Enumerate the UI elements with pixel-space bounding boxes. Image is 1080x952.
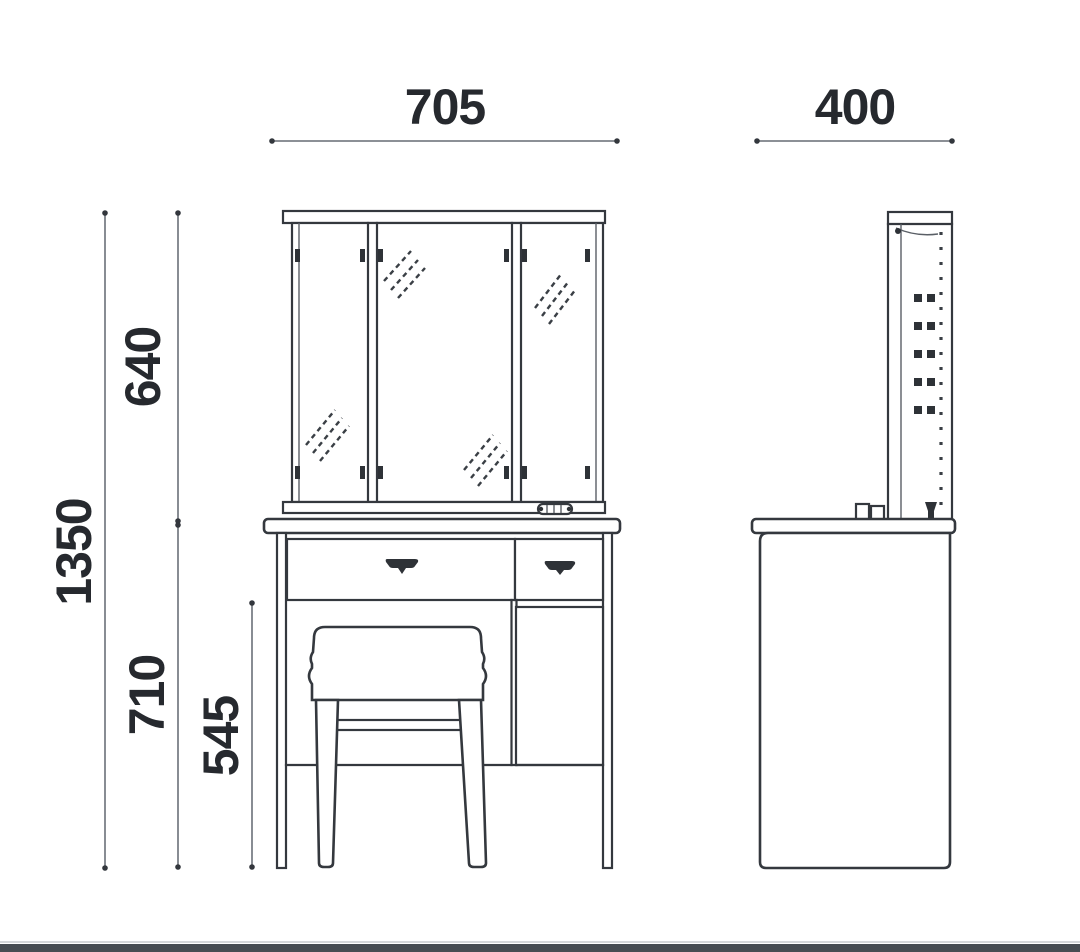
stool	[309, 627, 486, 867]
dim-line-640	[175, 210, 181, 524]
dimension-label-overall-height: 1350	[47, 442, 101, 662]
dimension-label-knee-clearance: 545	[194, 626, 248, 846]
desk-left-leg	[277, 533, 286, 868]
tabletop-knob	[538, 504, 572, 514]
front-view	[264, 211, 620, 868]
stool-leg-right	[459, 700, 486, 867]
mirror-frame	[292, 223, 603, 502]
tabletop-front	[264, 519, 620, 533]
cabinet-door	[516, 607, 603, 765]
mirror-side-bracket-pin	[895, 228, 901, 234]
dim-line-705	[269, 138, 620, 144]
photo-bottom-bar	[0, 944, 1080, 952]
photo-edge-line	[0, 941, 1080, 943]
dim-line-710	[175, 522, 181, 870]
mirror-side-profile	[888, 212, 952, 520]
dim-line-545	[249, 600, 255, 870]
stool-leg-left	[316, 700, 338, 867]
stool-seat	[309, 627, 486, 700]
technical-drawing-canvas: 705 400 1350 640 710 545	[0, 0, 1080, 952]
desk-side	[752, 519, 955, 868]
stool-stretcher	[333, 720, 463, 730]
dim-line-1350	[102, 210, 108, 871]
desk-side-body	[760, 533, 950, 868]
dimension-label-depth: 400	[755, 80, 955, 134]
dimension-label-width: 705	[345, 80, 545, 134]
dimension-label-table-height: 710	[120, 585, 174, 805]
tabletop-side	[752, 519, 955, 533]
trifold-mirror-front	[283, 211, 605, 513]
desk-right-leg	[603, 533, 612, 868]
dim-line-400	[754, 138, 955, 144]
dimension-label-mirror-height: 640	[116, 257, 170, 477]
side-view	[752, 212, 955, 868]
mirror-top-cap	[283, 211, 605, 223]
